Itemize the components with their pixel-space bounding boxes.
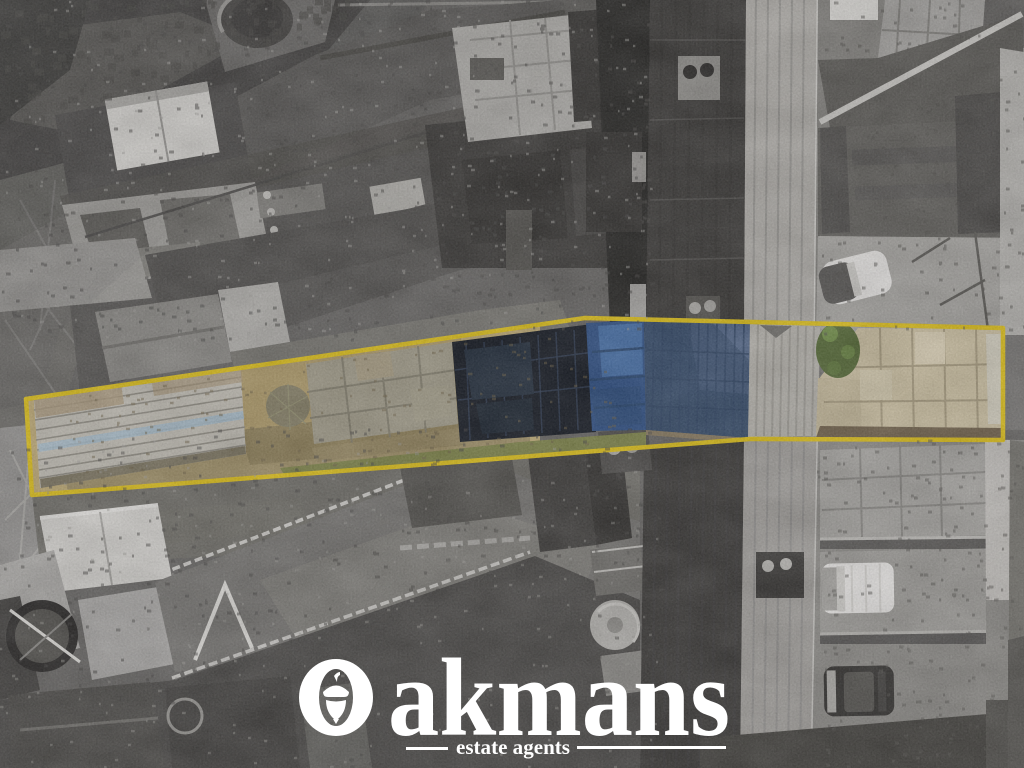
- svg-text:estate agents: estate agents: [456, 735, 570, 759]
